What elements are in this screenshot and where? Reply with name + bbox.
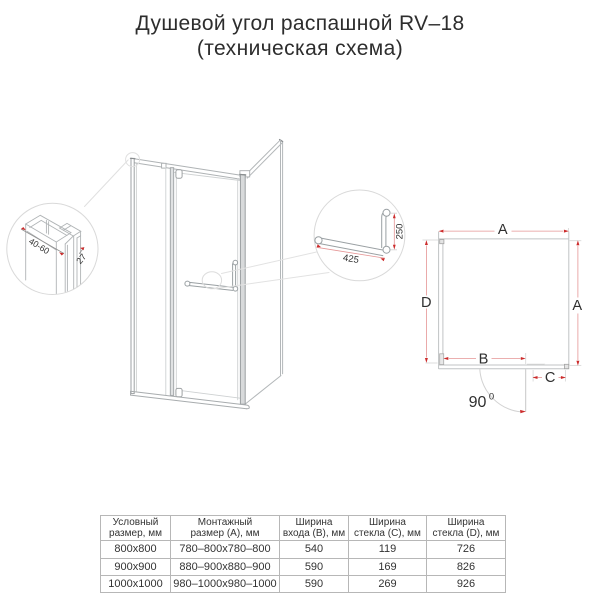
svg-text:250: 250	[395, 224, 406, 240]
svg-text:B: B	[479, 351, 489, 367]
svg-text:0: 0	[489, 392, 494, 403]
svg-text:C: C	[545, 370, 556, 386]
svg-text:90: 90	[469, 394, 487, 411]
svg-text:D: D	[421, 295, 432, 311]
svg-text:A: A	[572, 298, 582, 314]
svg-text:A: A	[498, 222, 508, 238]
